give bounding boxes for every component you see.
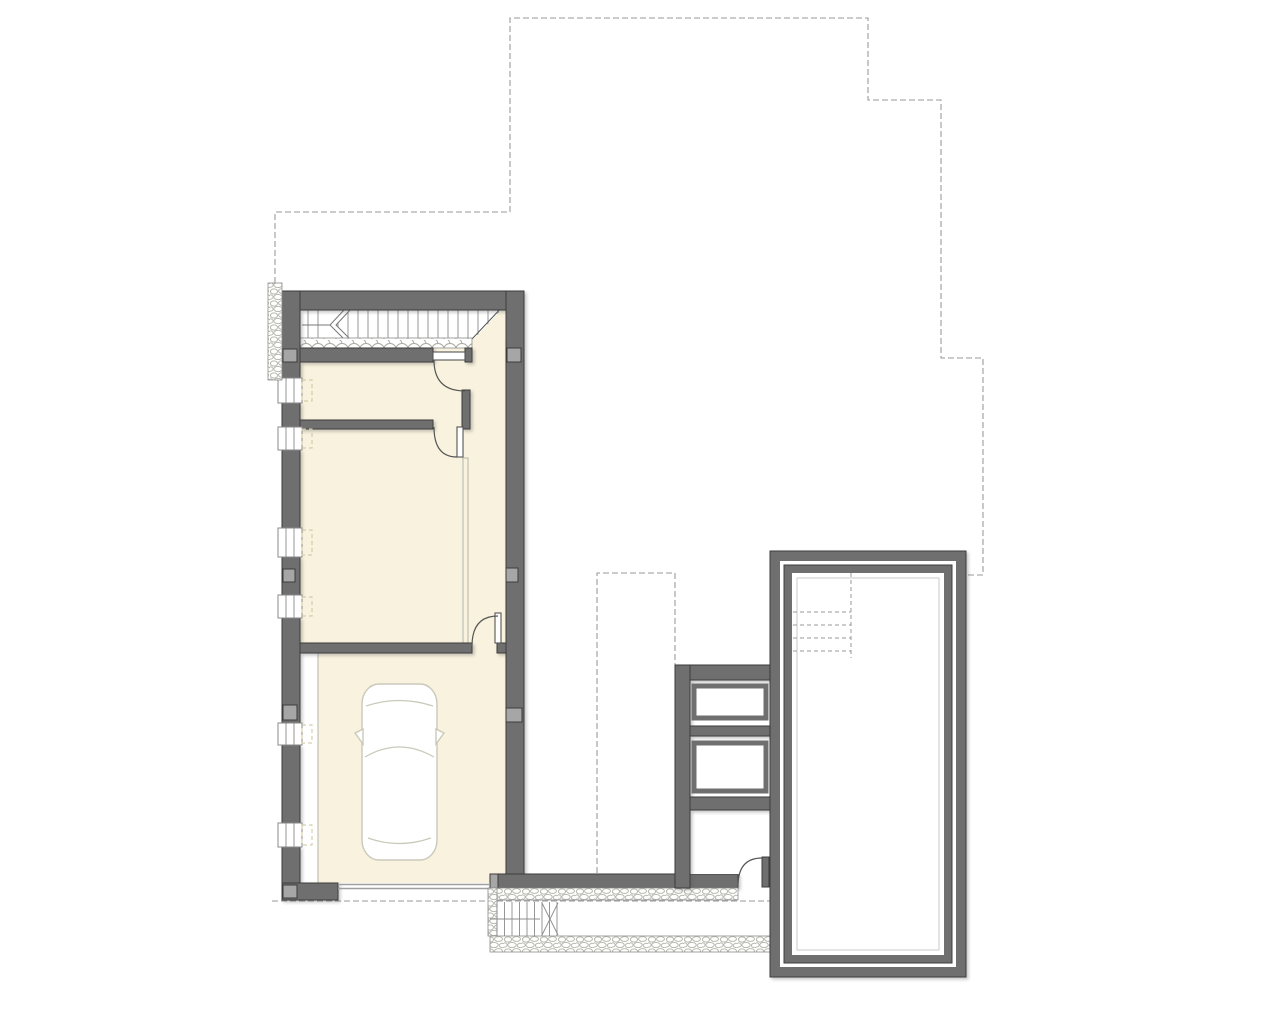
column-marker bbox=[283, 349, 297, 362]
paper-background bbox=[0, 0, 1280, 1024]
floor-plan-drawing bbox=[0, 0, 1280, 1024]
door-leaf-top-room bbox=[433, 352, 465, 360]
floor-plan-page bbox=[0, 0, 1280, 1024]
storage-structure bbox=[675, 665, 772, 888]
wall-left-segment bbox=[282, 450, 300, 528]
pool-basin bbox=[792, 573, 944, 955]
window-frame bbox=[278, 528, 302, 557]
wall-top bbox=[282, 291, 524, 310]
column-marker bbox=[283, 705, 297, 720]
storage-wall-divider-2 bbox=[690, 797, 772, 810]
pool bbox=[770, 551, 966, 977]
column-marker bbox=[283, 885, 297, 898]
storage-wall-left bbox=[675, 665, 690, 888]
pebble-strip-side bbox=[488, 888, 497, 936]
pebble-strip-lower bbox=[490, 936, 771, 952]
wall-left-segment bbox=[282, 403, 300, 427]
wall-left-segment bbox=[282, 745, 300, 823]
car-body bbox=[362, 684, 437, 860]
window-frame bbox=[278, 427, 302, 450]
window-frame bbox=[278, 595, 302, 618]
wall-room-divider-2 bbox=[300, 643, 472, 653]
pebble-strip-upper bbox=[490, 888, 738, 900]
window-frame bbox=[278, 823, 302, 847]
window-frame bbox=[278, 723, 302, 745]
door-leaf-middle-room bbox=[457, 427, 463, 457]
storage-box-2 bbox=[694, 743, 766, 791]
stair-nosing-strip bbox=[300, 338, 472, 348]
column-marker bbox=[283, 569, 295, 582]
door-leaf-garage bbox=[495, 613, 501, 643]
window-frame bbox=[278, 378, 302, 403]
storage-wall-divider-1 bbox=[690, 726, 772, 736]
wall-left-segment bbox=[282, 291, 300, 378]
wall-terrace-cap bbox=[490, 874, 498, 888]
storage-box-1 bbox=[694, 686, 766, 718]
stone-facing-strip bbox=[268, 283, 282, 380]
garage-floor-strip bbox=[300, 653, 318, 883]
wall-room-divider-2-post bbox=[497, 643, 506, 653]
column-marker bbox=[506, 708, 522, 722]
wall-terrace bbox=[490, 874, 738, 888]
wall-room-divider-1 bbox=[300, 420, 433, 429]
wall-right bbox=[506, 291, 524, 891]
column-marker bbox=[506, 568, 518, 582]
door-leaf-exterior bbox=[762, 857, 769, 887]
wall-return-stub bbox=[462, 390, 470, 429]
wall-landing-stub bbox=[465, 348, 472, 362]
column-marker bbox=[507, 348, 521, 362]
car bbox=[355, 684, 444, 860]
wall-landing bbox=[300, 348, 433, 362]
